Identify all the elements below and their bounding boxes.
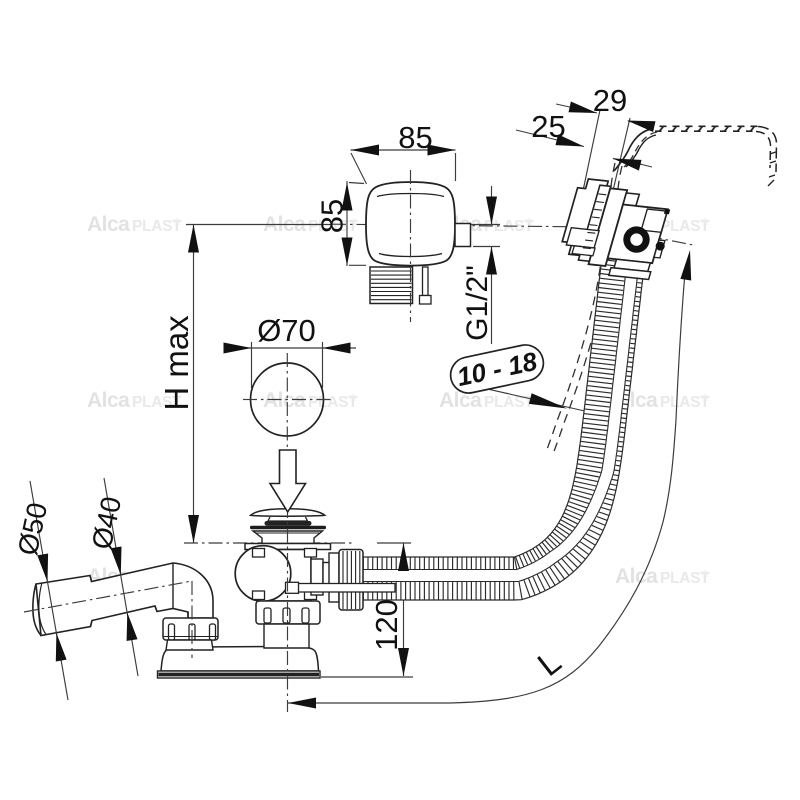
svg-text:Alca: Alca <box>87 389 130 412</box>
svg-text:®: ® <box>702 393 709 403</box>
svg-text:®: ® <box>702 569 709 579</box>
svg-text:29: 29 <box>593 83 627 118</box>
svg-text:Alca: Alca <box>87 213 130 236</box>
svg-text:®: ® <box>526 217 533 227</box>
svg-text:25: 25 <box>531 109 565 144</box>
svg-text:Ø70: Ø70 <box>257 313 316 348</box>
svg-text:®: ® <box>350 393 357 403</box>
svg-text:Alca: Alca <box>263 389 306 412</box>
svg-text:120: 120 <box>369 599 404 651</box>
svg-text:85: 85 <box>398 120 432 155</box>
svg-text:®: ® <box>702 217 709 227</box>
svg-text:Alca: Alca <box>615 565 658 588</box>
svg-text:G1/2": G1/2" <box>461 265 494 341</box>
svg-text:H max: H max <box>158 315 195 411</box>
svg-text:®: ® <box>350 217 357 227</box>
svg-text:®: ® <box>174 217 181 227</box>
svg-text:85: 85 <box>315 199 350 233</box>
